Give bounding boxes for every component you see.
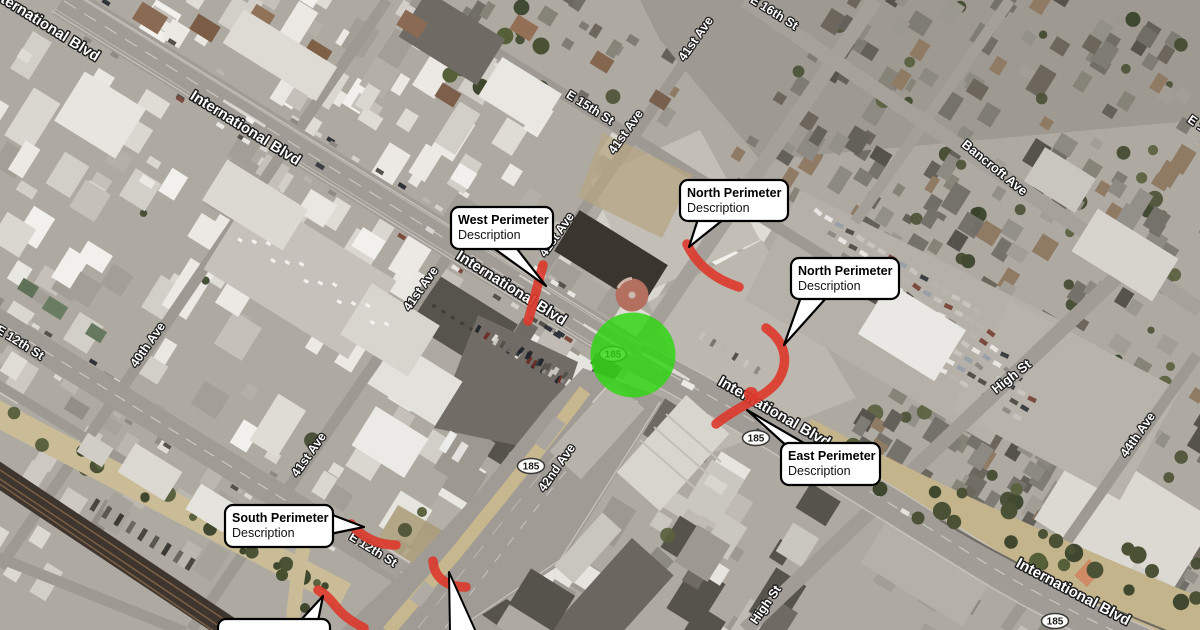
svg-text:South Perimeter: South Perimeter [232, 511, 329, 525]
svg-text:Description: Description [458, 228, 521, 242]
svg-text:Description: Description [687, 201, 750, 215]
svg-text:185: 185 [523, 462, 540, 473]
svg-text:Description: Description [798, 279, 861, 293]
svg-text:Description: Description [232, 526, 295, 540]
svg-text:185: 185 [748, 434, 765, 445]
svg-text:Description: Description [788, 464, 851, 478]
svg-text:North Perimeter: North Perimeter [687, 186, 782, 200]
svg-text:185: 185 [1047, 617, 1064, 628]
svg-text:North Perimeter: North Perimeter [798, 264, 893, 278]
svg-text:West Perimeter: West Perimeter [458, 213, 549, 227]
svg-text:East Perimeter: East Perimeter [788, 449, 876, 463]
